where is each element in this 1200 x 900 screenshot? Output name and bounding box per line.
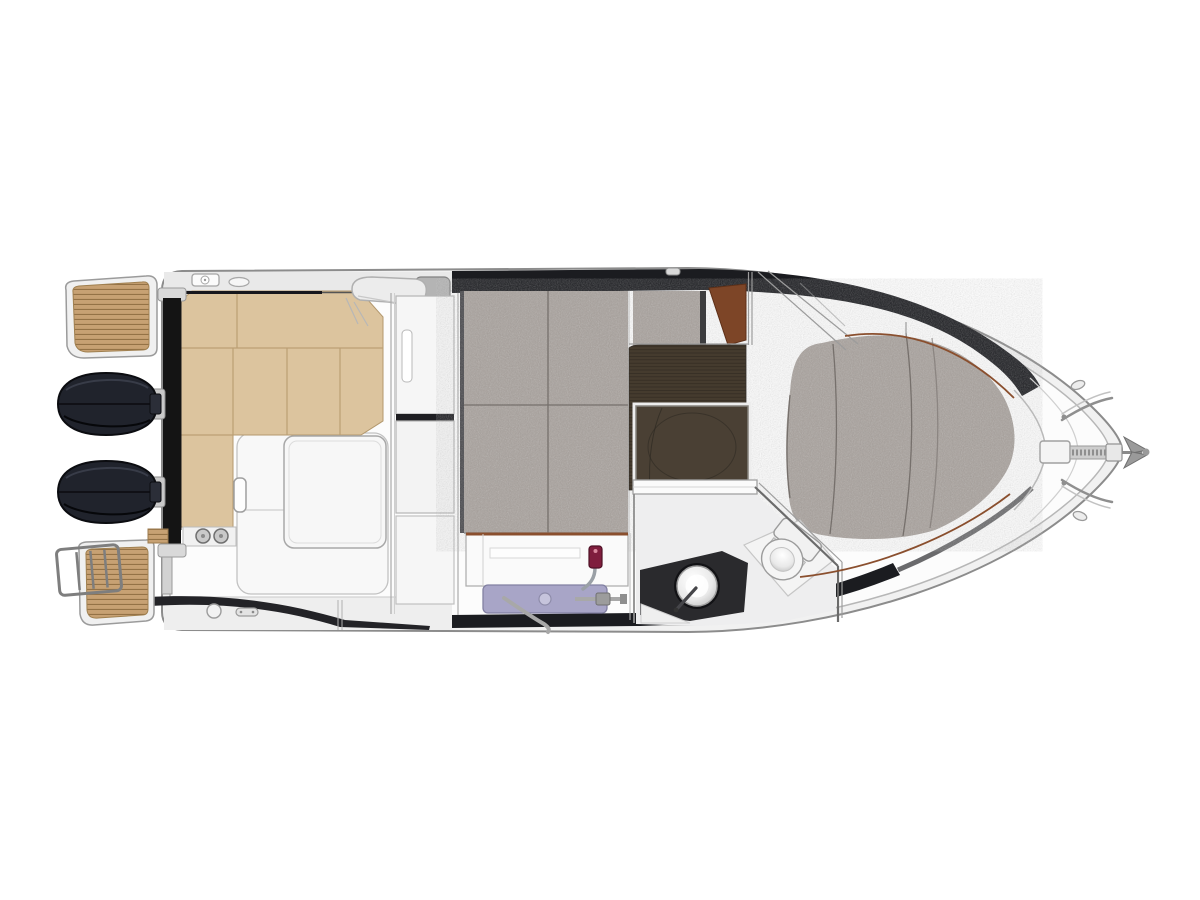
companionway-base-panel — [396, 516, 454, 604]
cockpit-table — [284, 436, 386, 548]
companionway-door-window — [402, 330, 412, 382]
swim-platform-port — [66, 276, 157, 358]
roof-handle — [666, 268, 680, 275]
deck-hatch-top — [192, 274, 219, 286]
anchor — [1122, 437, 1150, 468]
outboard-engine-port — [58, 373, 161, 435]
head-sink-faucet-tip — [674, 608, 679, 613]
galley-sink-drain — [539, 593, 551, 605]
boat-floor-plan-canvas — [0, 0, 1200, 900]
bench-grab-handle — [234, 478, 246, 512]
helm-seat — [633, 291, 704, 348]
deck-hatch-bottom — [207, 604, 221, 618]
stern-cleat-top — [229, 278, 249, 287]
galley-hose-fitting — [596, 593, 610, 605]
galley-splash-recess — [490, 548, 580, 558]
swim-platform-starboard-teak — [86, 547, 148, 618]
swim-platform-starboard — [56, 540, 154, 625]
transom-cap-bottom — [158, 544, 186, 557]
transom-bar — [163, 298, 181, 548]
galley-hose-cap — [620, 594, 627, 604]
swim-platform-port-teak — [73, 282, 149, 352]
nav-light-starboard — [1072, 510, 1088, 522]
floor-hatch-fill — [636, 406, 748, 489]
companionway-step-edge — [396, 414, 454, 421]
galley-faucet-highlight — [594, 549, 598, 553]
companionway-lower-panel — [396, 421, 454, 513]
transom-teak-step — [148, 529, 168, 543]
helm-seat-edge — [700, 291, 706, 348]
outboard-engine-starboard — [58, 461, 161, 523]
boat-floor-plan — [0, 0, 1200, 900]
mid-cabin-berth — [464, 291, 628, 533]
nav-light-port — [1070, 379, 1086, 391]
stern-cleat-bottom — [236, 608, 258, 616]
companionway — [391, 293, 458, 615]
galley-counter — [466, 534, 628, 586]
